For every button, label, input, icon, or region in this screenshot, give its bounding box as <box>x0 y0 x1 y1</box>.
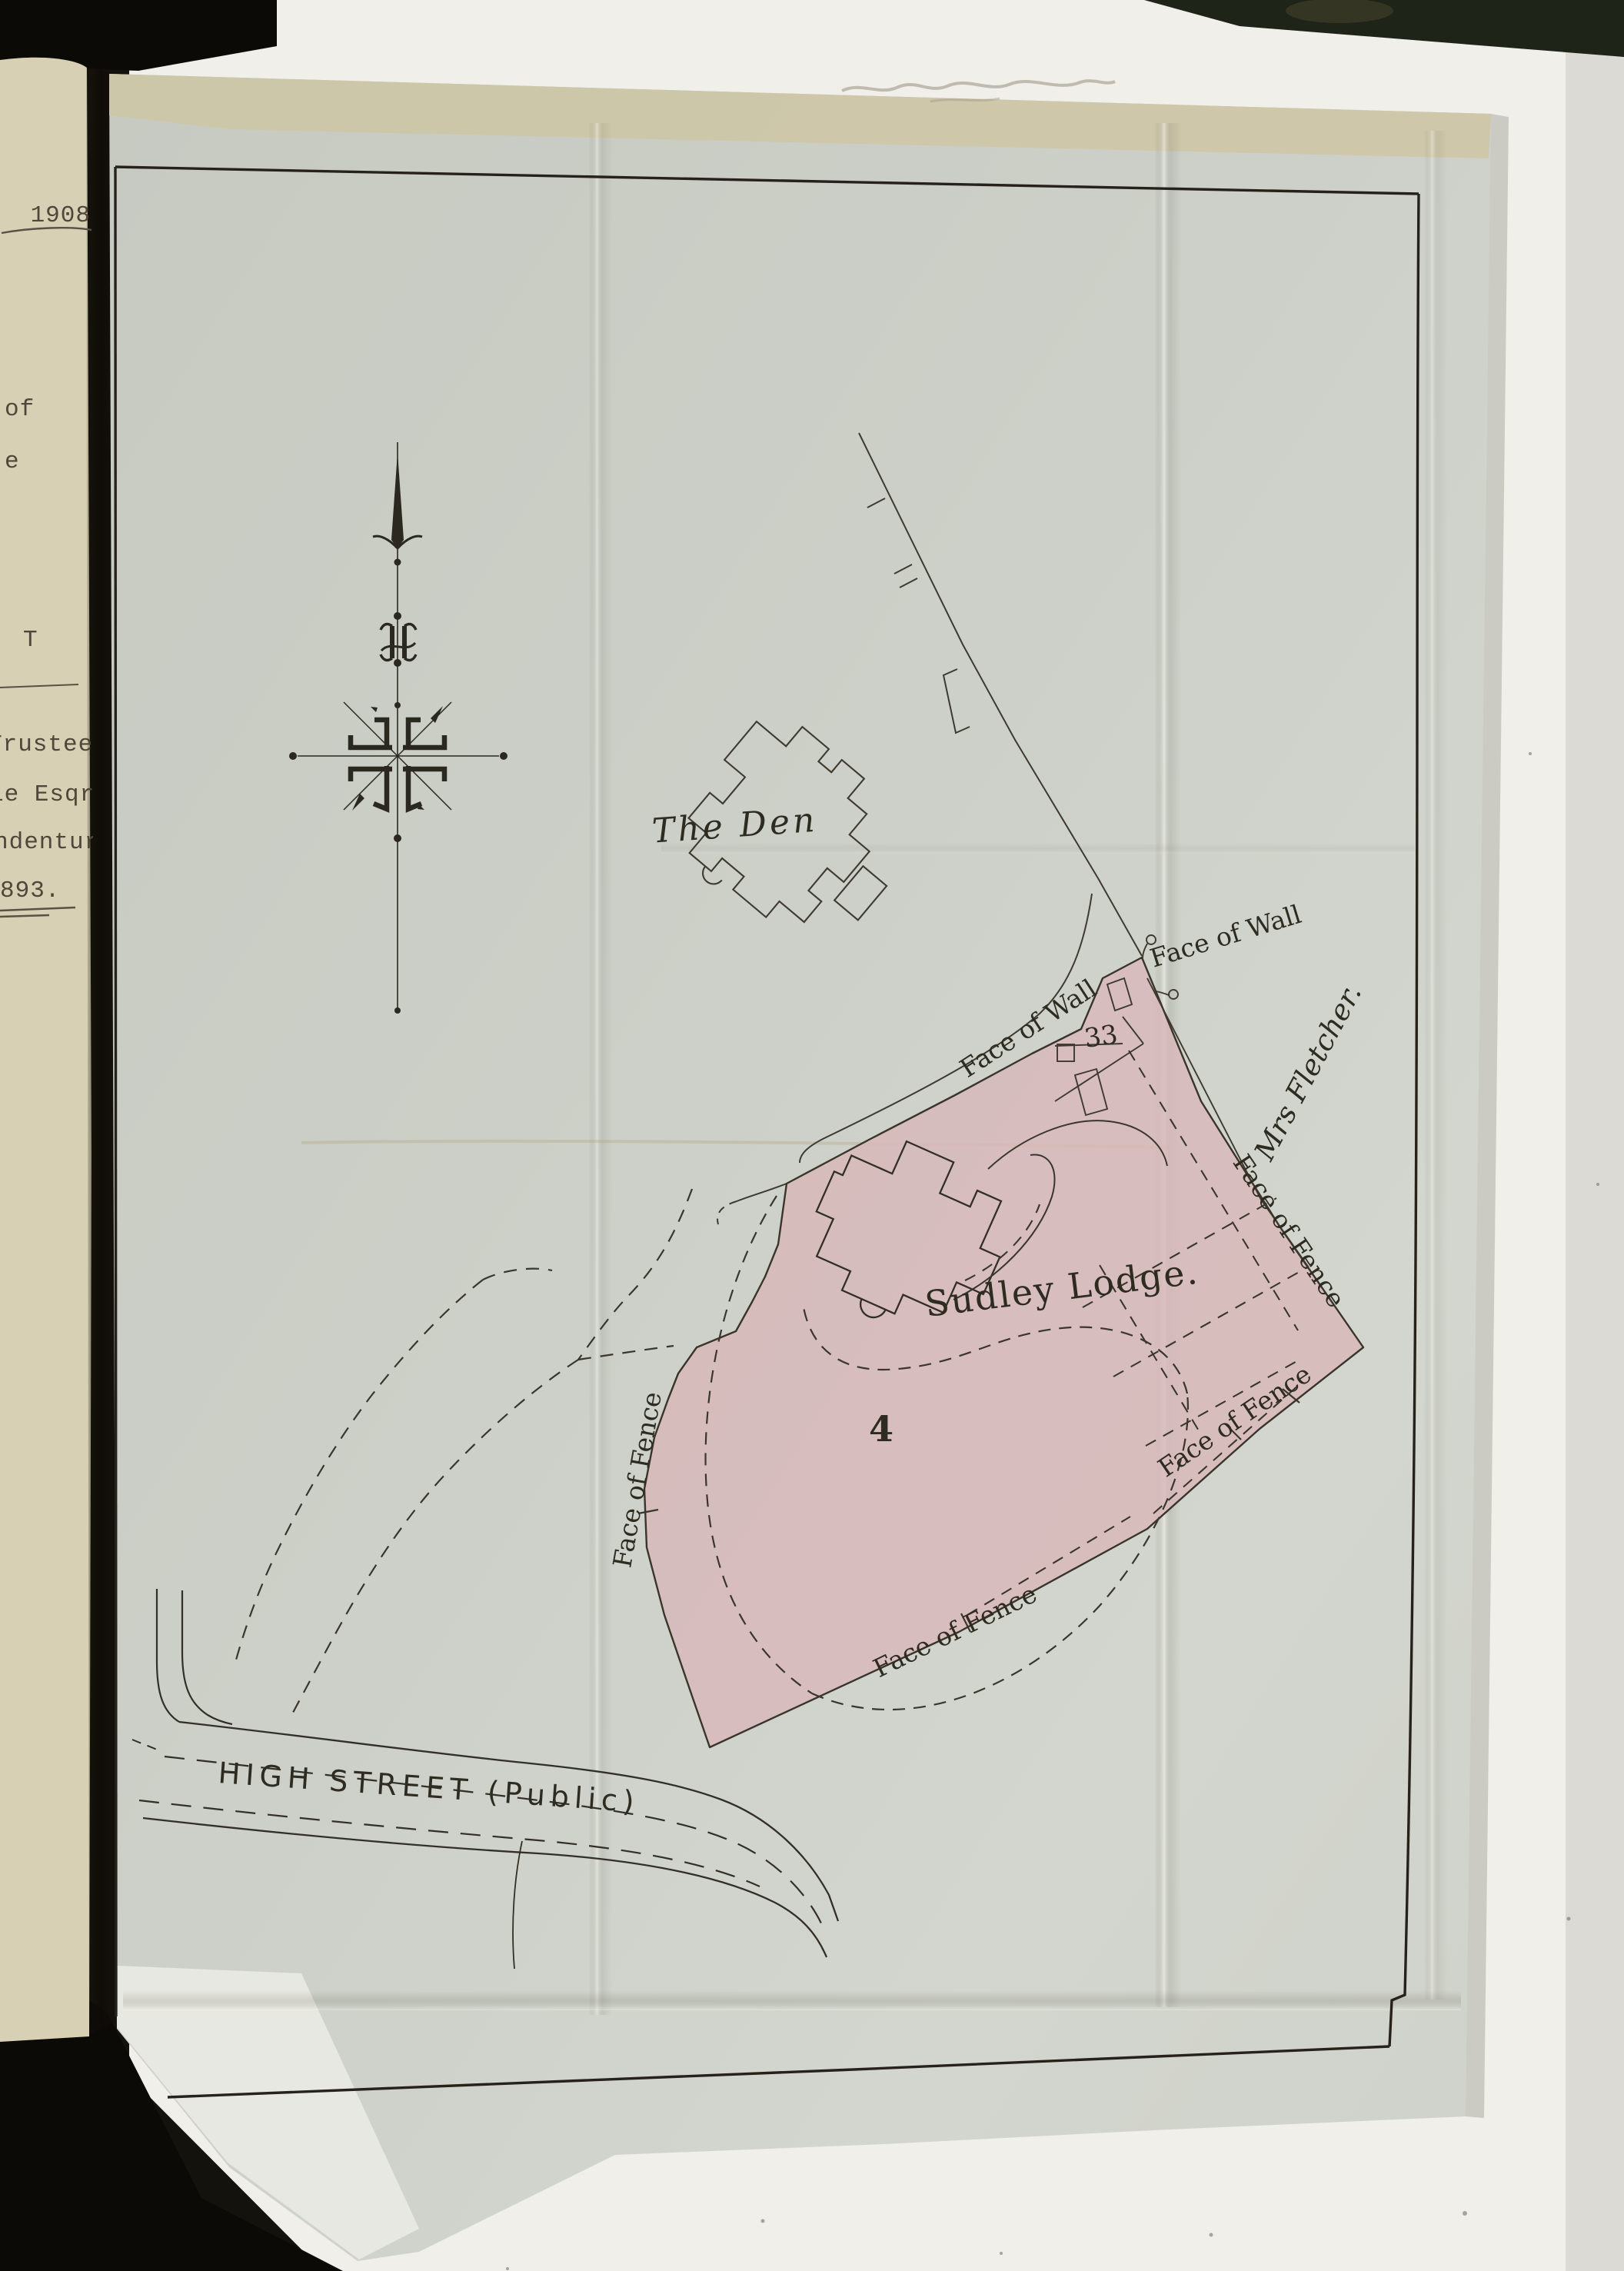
fold-crease-vertical-3 <box>1424 131 1447 2000</box>
fold-crease-horizontal-mid <box>661 843 1415 854</box>
typed-frag-trustee: Trustee <box>0 731 93 758</box>
typed-frag-t: T <box>23 627 38 654</box>
fold-crease-horizontal-bottom <box>123 1990 1461 2010</box>
plan-svg: 1908 of e T Trustee ie Esqre ndenture 89… <box>0 0 1624 2271</box>
fold-crease-vertical-1 <box>589 123 612 2015</box>
typed-page-paper <box>0 58 92 2042</box>
border-left <box>115 167 116 2016</box>
backing-sheet-edge-shade <box>1566 0 1624 2271</box>
typed-frag-of: of <box>5 396 35 423</box>
typed-year: 1908 <box>31 202 91 229</box>
typed-frag-893: 893. <box>0 877 60 904</box>
typed-frag-e: e <box>5 448 20 475</box>
typed-page: 1908 of e T Trustee ie Esqre ndenture 89… <box>0 58 118 2042</box>
map-sheet <box>109 74 1509 2261</box>
scanned-plan-page: 1908 of e T Trustee ie Esqre ndenture 89… <box>0 0 1624 2271</box>
label-parcel-33: 33 <box>1083 1019 1120 1054</box>
label-plot-4: 4 <box>869 1408 894 1450</box>
map-sheet-paper <box>109 74 1491 2261</box>
